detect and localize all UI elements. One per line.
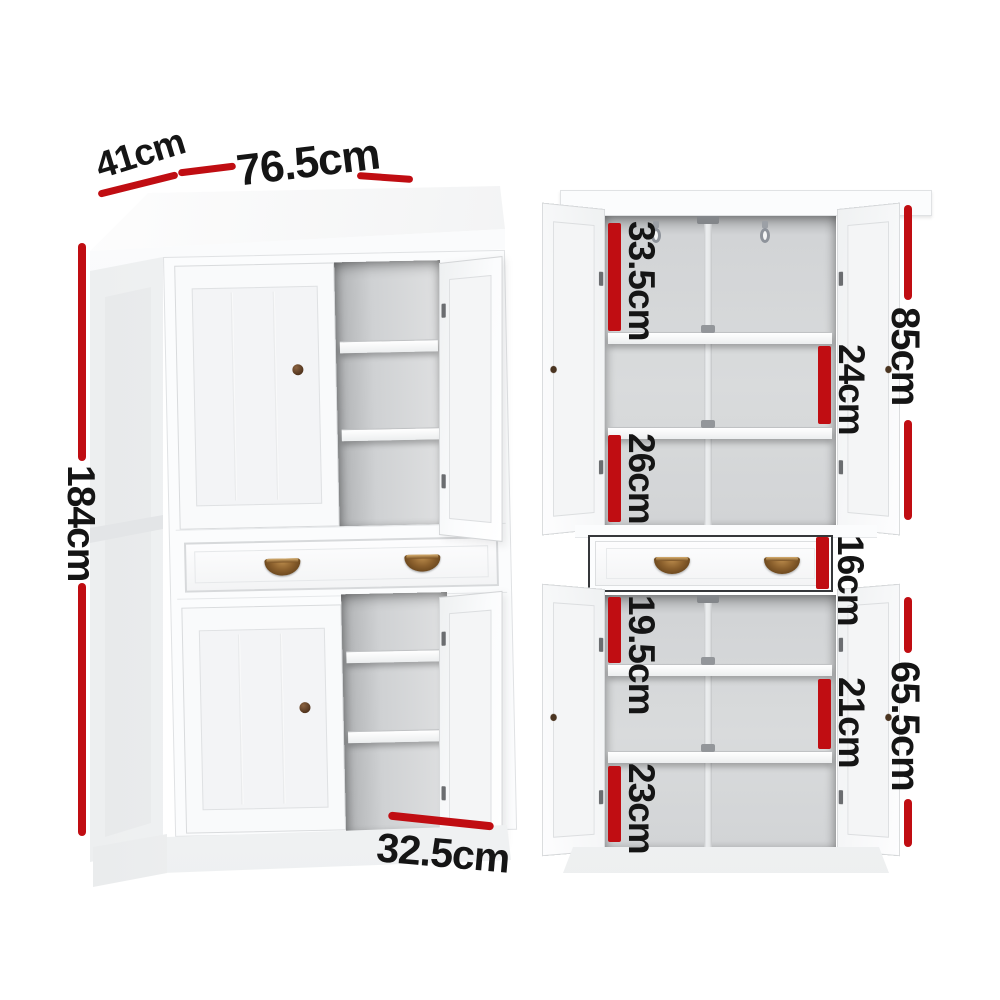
dimension-depth-label: 41cm <box>82 120 198 188</box>
center-divider <box>704 216 712 525</box>
dimension-upper-bottom-bar <box>608 435 621 522</box>
lower-shelf <box>348 730 446 743</box>
dimension-upper-bottom-label: 26cm <box>623 433 660 524</box>
upper-left-door-open <box>542 203 605 536</box>
upper-left-door-panel <box>192 286 323 507</box>
divider-top-bracket <box>697 216 719 224</box>
dimension-shelf-width-label: 32.5cm <box>371 827 514 880</box>
dimension-upper-middle-label: 24cm <box>833 344 870 435</box>
dimension-upper-total-line-bottom <box>904 420 912 520</box>
door-knob <box>550 714 556 721</box>
drawer-front <box>595 541 826 586</box>
dimension-lower-middle-bar <box>818 679 831 749</box>
upper-left-door-closed <box>174 262 339 529</box>
upper-interior-opening <box>334 260 446 526</box>
dimension-drawer-bar <box>816 537 829 589</box>
door-knob <box>550 366 556 373</box>
door-groove <box>280 634 286 804</box>
dimension-upper-middle-bar <box>818 346 831 424</box>
shelf-clip <box>701 325 715 333</box>
dimension-lower-total-line-bottom <box>904 799 912 847</box>
door-hinge <box>599 790 603 804</box>
dimension-lower-bottom-bar <box>608 766 621 842</box>
divider-top-bracket <box>697 595 719 603</box>
door-groove <box>231 293 237 501</box>
shelf-clip <box>701 657 715 665</box>
door-hinge <box>599 272 603 286</box>
cabinet-dimension-diagram: 41cm 76.5cm 184cm 32.5cm <box>0 0 1000 1000</box>
lower-left-door-panel <box>199 628 329 811</box>
front-open-view: 33.5cm 24cm 26cm 16cm 19.5cm 21cm 23cm 8… <box>515 183 995 888</box>
hook-plate <box>762 221 768 228</box>
dimension-width-line-left <box>178 162 236 176</box>
dimension-width-label: 76.5cm <box>231 132 385 194</box>
dimension-height-line-bottom <box>78 583 86 836</box>
dimension-lower-middle-label: 21cm <box>833 677 870 768</box>
dimension-lower-top-bar <box>608 597 621 663</box>
dimension-upper-top-label: 33.5cm <box>623 221 660 341</box>
dimension-lower-bottom-label: 23cm <box>623 763 660 854</box>
upper-open-door-panel <box>449 275 491 523</box>
angled-view: 41cm 76.5cm 184cm 32.5cm <box>55 125 517 895</box>
shelf-clip <box>701 420 715 428</box>
lower-open-door-panel <box>449 610 491 825</box>
dimension-drawer-label: 16cm <box>832 535 869 626</box>
lower-left-door-panel <box>553 602 594 838</box>
door-hinge <box>599 638 603 652</box>
dimension-lower-total-line-top <box>904 597 912 653</box>
door-hinge <box>599 460 603 474</box>
dimension-height-label: 184cm <box>61 465 100 581</box>
door-hinge <box>442 303 446 317</box>
dimension-upper-top-bar <box>608 223 621 331</box>
dimension-upper-total-line-top <box>904 205 912 300</box>
center-divider <box>704 595 712 847</box>
door-groove <box>273 292 279 500</box>
door-groove <box>238 634 244 804</box>
door-hinge <box>839 460 843 474</box>
lower-right-door-open <box>439 591 502 843</box>
hook-ring <box>760 228 770 243</box>
lower-left-door-closed <box>181 604 346 833</box>
lower-shelf <box>608 752 832 763</box>
door-hinge <box>442 632 446 646</box>
lower-shelf <box>346 650 444 663</box>
door-hinge <box>839 638 843 652</box>
dimension-lower-top-label: 19.5cm <box>623 595 660 715</box>
door-hinge <box>839 272 843 286</box>
lower-interior-opening <box>341 592 452 832</box>
dimension-width-line-right <box>357 172 413 183</box>
upper-shelf <box>340 340 438 353</box>
dimension-upper-total-label: 85cm <box>885 307 925 405</box>
upper-right-door-open <box>439 256 502 542</box>
drawer-front <box>184 536 499 593</box>
dimension-height-line-top <box>78 243 86 461</box>
drawer-outline <box>588 535 833 592</box>
dimension-lower-total-label: 65.5cm <box>885 661 925 791</box>
ceiling-hook <box>758 221 772 251</box>
lower-left-door-open <box>542 584 605 857</box>
upper-left-door-panel <box>553 221 594 517</box>
drawer-front-recess <box>194 545 489 583</box>
upper-shelf <box>342 428 440 441</box>
shelf-clip <box>701 744 715 752</box>
door-hinge <box>442 474 446 488</box>
door-hinge <box>442 786 446 800</box>
door-hinge <box>839 790 843 804</box>
